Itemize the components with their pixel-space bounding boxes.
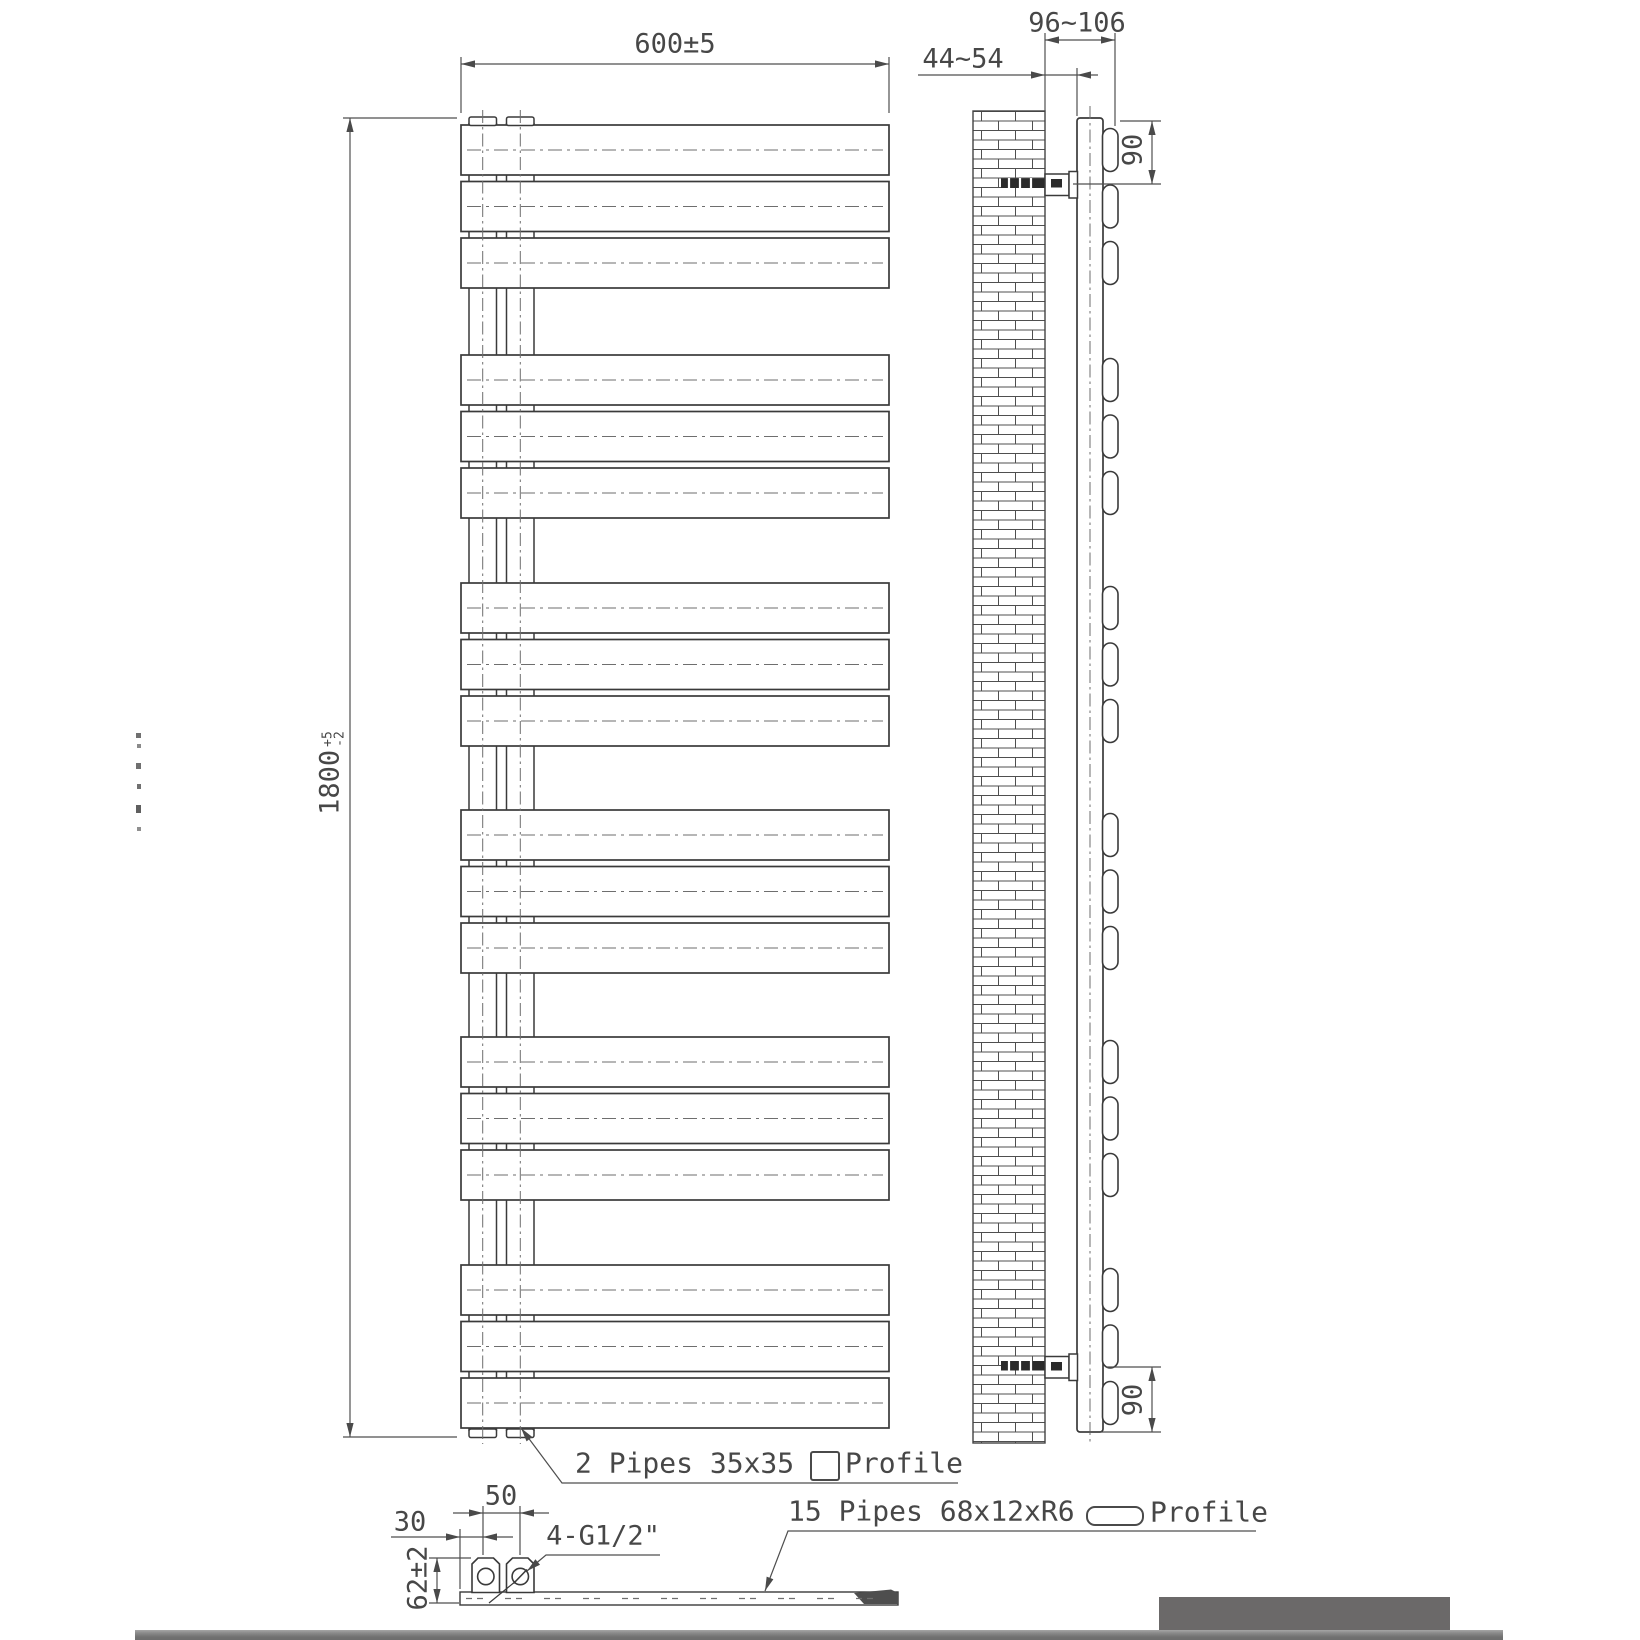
- side-panel-oval: [1103, 1325, 1119, 1368]
- dim-width-label: 600±5: [634, 29, 715, 60]
- dim-connection-height-label: 62±2: [403, 1545, 434, 1610]
- note-horizontal-pipes-profile: Profile: [1150, 1496, 1268, 1529]
- radiator-drawing-canvas: [0, 0, 1640, 1640]
- side-panel-oval: [1103, 242, 1119, 285]
- pipe-end-tabs: [469, 117, 534, 1438]
- arrowhead: [520, 1509, 534, 1516]
- footer-bar: [135, 1630, 1503, 1640]
- front-view: [461, 110, 889, 1444]
- arrowhead: [1148, 1367, 1155, 1381]
- leader-connections: [527, 1555, 660, 1571]
- leader-horizontal-pipes-note: [765, 1531, 1256, 1591]
- side-panel-oval: [1103, 472, 1119, 515]
- side-panel-oval: [1103, 814, 1119, 857]
- oval-profile-icon: [1086, 1506, 1144, 1526]
- dim-wall-gap-label: 44~54: [922, 44, 1003, 75]
- side-panel-oval: [1103, 1097, 1119, 1140]
- side-panel-oval: [1103, 1041, 1119, 1084]
- side-panel-oval: [1103, 1269, 1119, 1312]
- side-panel-oval: [1103, 700, 1119, 743]
- dim-pipe-spacing-label: 50: [485, 1481, 518, 1512]
- side-panel-oval: [1103, 643, 1119, 686]
- side-panel-oval: [1103, 129, 1119, 172]
- arrowhead: [446, 1533, 460, 1540]
- side-panel-oval: [1103, 185, 1119, 228]
- dim-bracket-top-label: 90: [1118, 134, 1149, 167]
- arrowhead: [461, 60, 475, 67]
- side-panel-oval: [1103, 1382, 1119, 1425]
- arrowhead: [433, 1558, 440, 1572]
- dim-height-tolerance: +5-2: [322, 731, 346, 747]
- side-panel-oval: [1103, 359, 1119, 402]
- dim-height-value: 1800: [314, 750, 345, 815]
- bottom-view: [460, 1558, 898, 1605]
- arrowhead: [346, 1423, 353, 1437]
- dim-height-label: 1800+5-2: [314, 731, 346, 815]
- print-mark: [137, 744, 141, 748]
- square-profile-icon: [810, 1451, 840, 1481]
- connections-label: 4-G1/2": [546, 1521, 660, 1552]
- dim-pipe-offset-label: 30: [394, 1507, 427, 1538]
- side-panel-oval: [1103, 415, 1119, 458]
- side-panel-oval: [1103, 870, 1119, 913]
- print-mark: [136, 733, 141, 738]
- note-horizontal-pipes: 15 Pipes 68x12xR6: [788, 1495, 1075, 1528]
- technical-drawing-page: 600±5 1800+5-2 96~106 44~54 90 90 50 30 …: [0, 0, 1640, 1640]
- arrowhead: [1077, 71, 1091, 78]
- note-vertical-pipes: 2 Pipes 35x35: [575, 1447, 794, 1480]
- front-panels: [461, 125, 889, 1428]
- arrowhead: [1148, 121, 1155, 135]
- pipe-centerlines: [483, 110, 521, 1444]
- dim-bracket-bottom-label: 90: [1118, 1384, 1149, 1417]
- print-mark: [136, 805, 141, 813]
- print-mark: [137, 784, 141, 789]
- arrowhead: [346, 118, 353, 132]
- note-vertical-pipes-profile: Profile: [845, 1447, 963, 1480]
- arrowhead: [483, 1533, 497, 1540]
- vertical-pipe-lines: [469, 123, 534, 1431]
- arrowhead: [1148, 170, 1155, 184]
- side-panel-oval: [1103, 587, 1119, 630]
- side-panel-oval: [1103, 1154, 1119, 1197]
- arrowhead: [469, 1509, 483, 1516]
- side-view-wall: [973, 111, 1045, 1443]
- arrowhead: [765, 1577, 773, 1591]
- connection-fittings: [472, 1558, 534, 1593]
- dim-depth-label: 96~106: [1028, 8, 1126, 39]
- side-panel-ovals: [1103, 129, 1119, 1425]
- arrowhead: [875, 60, 889, 67]
- side-panel-oval: [1103, 927, 1119, 970]
- arrowhead: [433, 1589, 440, 1603]
- print-mark: [137, 827, 141, 831]
- print-mark: [136, 763, 141, 769]
- arrowhead: [1031, 71, 1045, 78]
- arrowhead: [1148, 1418, 1155, 1432]
